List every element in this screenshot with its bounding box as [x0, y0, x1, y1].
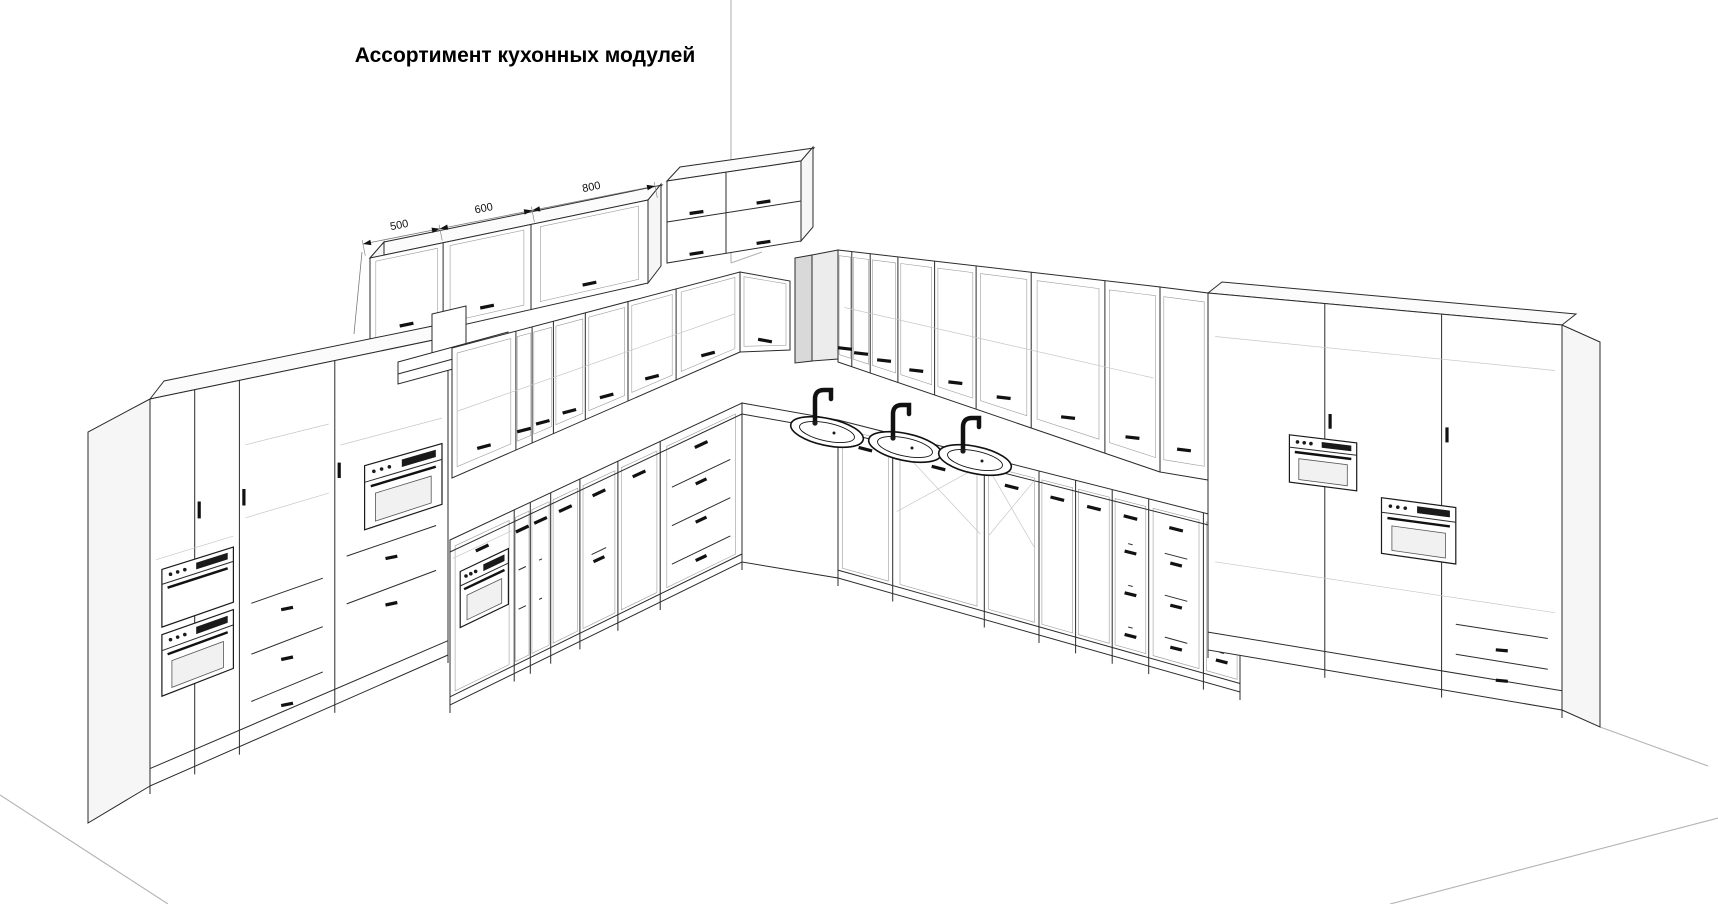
wall-cabinet-block	[667, 147, 814, 263]
corner-wall-cabinet	[740, 272, 790, 352]
kitchen-diagram: Ассортимент кухонных модулей 500600800	[0, 0, 1718, 904]
dim-label: 800	[581, 180, 601, 195]
tall-cabinets-left	[88, 320, 462, 823]
tall-cabinets-right	[1208, 282, 1600, 727]
dim-label: 600	[474, 201, 494, 216]
diagram-canvas: 500600800	[0, 0, 1718, 904]
dim-label: 500	[389, 218, 409, 233]
